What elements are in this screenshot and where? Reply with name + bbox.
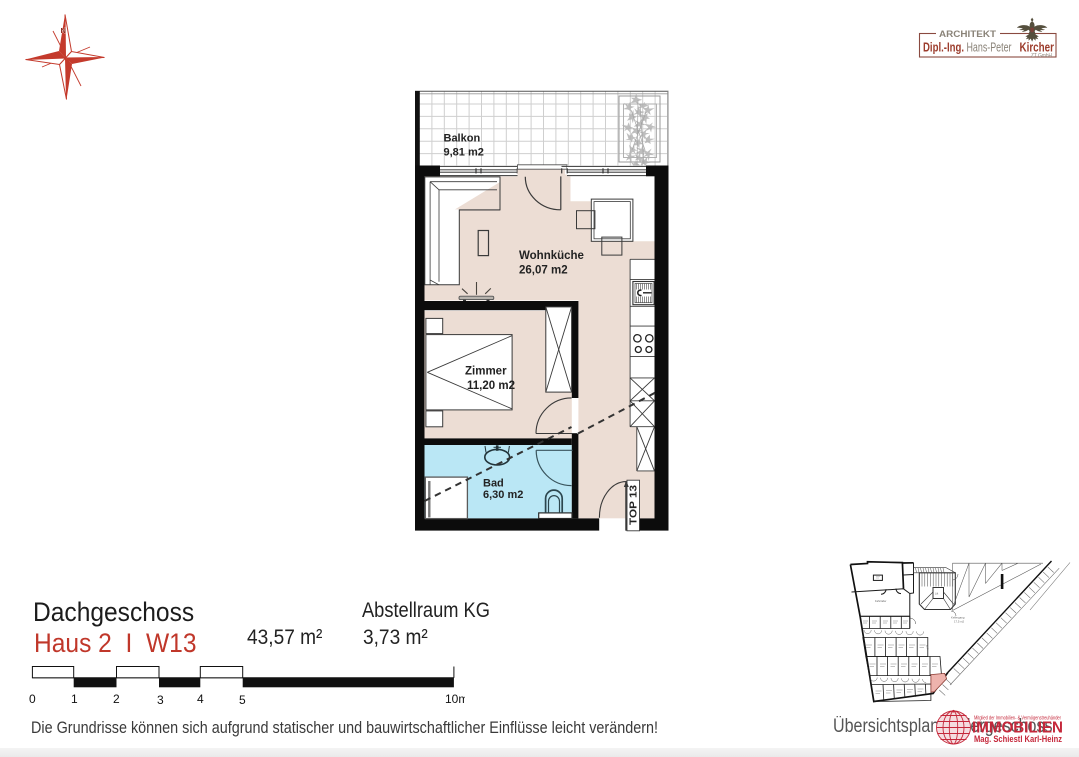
- svg-text:Hans-Peter: Hans-Peter: [967, 40, 1012, 55]
- svg-text:26,07 m2: 26,07 m2: [519, 265, 568, 277]
- svg-text:11,20 m2: 11,20 m2: [467, 380, 515, 392]
- svg-text:Wohnküche: Wohnküche: [519, 250, 584, 262]
- svg-text:Mag. Schiestl Karl-Heinz: Mag. Schiestl Karl-Heinz: [974, 734, 1062, 745]
- svg-text:4: 4: [197, 692, 204, 706]
- svg-text:Zimmer: Zimmer: [465, 366, 507, 378]
- svg-text:6,30 m2: 6,30 m2: [483, 489, 523, 501]
- svg-text:N: N: [61, 26, 66, 35]
- svg-text:Fahrräder: Fahrräder: [875, 599, 887, 603]
- svg-text:Abst.: Abst.: [925, 644, 929, 650]
- svg-text:ZT GmbH: ZT GmbH: [1031, 53, 1052, 59]
- svg-text:1: 1: [71, 692, 78, 706]
- svg-text:5: 5: [239, 693, 246, 706]
- svg-text:10m: 10m: [445, 692, 465, 706]
- svg-text:9,81 m2: 9,81 m2: [444, 147, 484, 159]
- svg-text:Dipl.-Ing.: Dipl.-Ing.: [923, 40, 964, 55]
- svg-text:0: 0: [29, 692, 36, 706]
- svg-text:Balkon: Balkon: [444, 133, 481, 145]
- svg-text:ARCHITEKT: ARCHITEKT: [939, 29, 997, 39]
- svg-text:TOP 13: TOP 13: [628, 485, 640, 525]
- svg-text:Bad: Bad: [483, 478, 504, 490]
- svg-text:17,5 m2: 17,5 m2: [954, 620, 965, 624]
- svg-text:2: 2: [113, 692, 120, 706]
- svg-text:Lift: Lift: [935, 593, 939, 596]
- svg-text:3: 3: [157, 693, 164, 706]
